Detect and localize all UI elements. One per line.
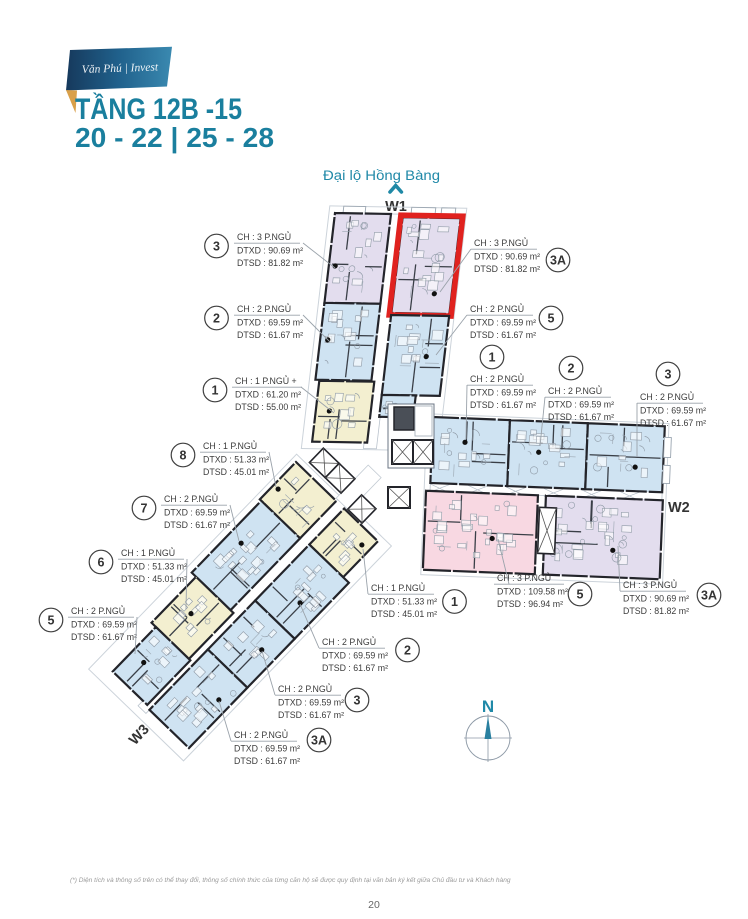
svg-text:DTXD : 51.33 m²: DTXD : 51.33 m² xyxy=(371,597,437,607)
svg-text:CH : 3 P.NGỦ: CH : 3 P.NGỦ xyxy=(474,237,528,248)
svg-text:DTXD : 90.69 m²: DTXD : 90.69 m² xyxy=(474,252,540,262)
svg-text:CH : 2 P.NGỦ: CH : 2 P.NGỦ xyxy=(470,373,524,384)
svg-text:3: 3 xyxy=(213,239,220,253)
svg-text:DTSD : 81.82 m²: DTSD : 81.82 m² xyxy=(237,258,303,268)
svg-text:DTSD : 61.67 m²: DTSD : 61.67 m² xyxy=(470,400,536,410)
svg-text:DTXD : 69.59 m²: DTXD : 69.59 m² xyxy=(71,620,137,630)
svg-text:TẦNG 12B -15: TẦNG 12B -15 xyxy=(75,92,242,126)
svg-text:(*) Diện tích và thông số trên: (*) Diện tích và thông số trên có thể th… xyxy=(70,875,511,884)
svg-text:3A: 3A xyxy=(701,588,717,602)
svg-text:DTSD : 61.67 m²: DTSD : 61.67 m² xyxy=(640,418,706,428)
svg-text:CH : 2 P.NGỦ: CH : 2 P.NGỦ xyxy=(278,683,332,694)
svg-text:DTXD : 69.59 m²: DTXD : 69.59 m² xyxy=(640,406,706,416)
svg-text:CH : 2 P.NGỦ: CH : 2 P.NGỦ xyxy=(164,493,218,504)
svg-text:1: 1 xyxy=(451,595,458,609)
svg-text:CH : 2 P.NGỦ: CH : 2 P.NGỦ xyxy=(71,605,125,616)
svg-text:5: 5 xyxy=(548,311,555,325)
svg-text:DTXD : 51.33 m²: DTXD : 51.33 m² xyxy=(121,562,187,572)
svg-text:2: 2 xyxy=(404,643,411,657)
svg-text:DTSD : 45.01 m²: DTSD : 45.01 m² xyxy=(371,609,437,619)
svg-text:CH : 2 P.NGỦ: CH : 2 P.NGỦ xyxy=(470,303,524,314)
svg-text:DTXD : 109.58 m²: DTXD : 109.58 m² xyxy=(497,587,568,597)
svg-text:20: 20 xyxy=(368,899,380,911)
svg-text:1: 1 xyxy=(212,383,219,397)
svg-text:DTXD : 69.59 m²: DTXD : 69.59 m² xyxy=(234,744,300,754)
svg-text:5: 5 xyxy=(48,613,55,627)
svg-text:DTSD : 61.67 m²: DTSD : 61.67 m² xyxy=(164,520,230,530)
svg-text:DTXD : 90.69 m²: DTXD : 90.69 m² xyxy=(237,246,303,256)
svg-text:CH : 1 P.NGỦ +: CH : 1 P.NGỦ + xyxy=(235,375,297,386)
svg-text:DTXD : 90.69 m²: DTXD : 90.69 m² xyxy=(623,594,689,604)
svg-text:DTXD : 69.59 m²: DTXD : 69.59 m² xyxy=(237,318,303,328)
svg-text:7: 7 xyxy=(141,501,148,515)
svg-text:1: 1 xyxy=(489,350,496,364)
svg-text:CH : 2 P.NGỦ: CH : 2 P.NGỦ xyxy=(237,303,291,314)
svg-text:DTXD : 51.33 m²: DTXD : 51.33 m² xyxy=(203,455,269,465)
svg-text:DTXD : 69.59 m²: DTXD : 69.59 m² xyxy=(278,698,344,708)
svg-text:DTXD : 69.59 m²: DTXD : 69.59 m² xyxy=(322,651,388,661)
svg-text:DTSD : 61.67 m²: DTSD : 61.67 m² xyxy=(470,330,536,340)
svg-text:DTXD : 69.59 m²: DTXD : 69.59 m² xyxy=(470,388,536,398)
svg-text:5: 5 xyxy=(577,587,584,601)
svg-text:Đại lộ Hồng Bàng: Đại lộ Hồng Bàng xyxy=(323,168,440,183)
svg-text:DTSD : 96.94 m²: DTSD : 96.94 m² xyxy=(497,599,563,609)
svg-text:DTSD : 61.67 m²: DTSD : 61.67 m² xyxy=(234,756,300,766)
svg-text:3A: 3A xyxy=(311,733,327,747)
svg-text:CH : 1 P.NGỦ: CH : 1 P.NGỦ xyxy=(203,440,257,451)
svg-text:DTXD : 69.59 m²: DTXD : 69.59 m² xyxy=(470,318,536,328)
svg-text:8: 8 xyxy=(180,448,187,462)
svg-text:2: 2 xyxy=(568,361,575,375)
svg-text:DTXD : 69.59 m²: DTXD : 69.59 m² xyxy=(164,508,230,518)
svg-text:CH : 2 P.NGỦ: CH : 2 P.NGỦ xyxy=(234,729,288,740)
svg-text:DTSD : 61.67 m²: DTSD : 61.67 m² xyxy=(548,412,614,422)
svg-text:CH : 2 P.NGỦ: CH : 2 P.NGỦ xyxy=(322,636,376,647)
svg-text:CH : 1 P.NGỦ: CH : 1 P.NGỦ xyxy=(121,547,175,558)
svg-text:DTSD : 61.67 m²: DTSD : 61.67 m² xyxy=(71,632,137,642)
svg-text:N: N xyxy=(482,697,494,716)
svg-text:CH : 3 P.NGỦ: CH : 3 P.NGỦ xyxy=(497,572,551,583)
svg-text:W2: W2 xyxy=(668,500,690,516)
svg-text:DTSD : 61.67 m²: DTSD : 61.67 m² xyxy=(322,663,388,673)
svg-text:20 - 22 | 25 - 28: 20 - 22 | 25 - 28 xyxy=(75,122,274,153)
svg-text:2: 2 xyxy=(213,311,220,325)
svg-text:DTSD : 61.67 m²: DTSD : 61.67 m² xyxy=(237,330,303,340)
svg-text:DTSD : 55.00 m²: DTSD : 55.00 m² xyxy=(235,402,301,412)
svg-text:DTSD : 61.67 m²: DTSD : 61.67 m² xyxy=(278,710,344,720)
svg-text:DTSD : 81.82 m²: DTSD : 81.82 m² xyxy=(623,606,689,616)
svg-text:CH : 1 P.NGỦ: CH : 1 P.NGỦ xyxy=(371,582,425,593)
svg-text:CH : 2 P.NGỦ: CH : 2 P.NGỦ xyxy=(640,391,694,402)
svg-text:CH : 2 P.NGỦ: CH : 2 P.NGỦ xyxy=(548,385,602,396)
svg-text:3: 3 xyxy=(665,367,672,381)
svg-text:DTXD : 61.20 m²: DTXD : 61.20 m² xyxy=(235,390,301,400)
svg-text:3A: 3A xyxy=(550,253,566,267)
svg-text:DTSD : 81.82 m²: DTSD : 81.82 m² xyxy=(474,264,540,274)
svg-text:DTSD : 45.01 m²: DTSD : 45.01 m² xyxy=(203,467,269,477)
svg-text:CH : 3 P.NGỦ: CH : 3 P.NGỦ xyxy=(623,579,677,590)
svg-text:CH : 3 P.NGỦ: CH : 3 P.NGỦ xyxy=(237,231,291,242)
svg-text:DTXD : 69.59 m²: DTXD : 69.59 m² xyxy=(548,400,614,410)
svg-text:6: 6 xyxy=(98,555,105,569)
svg-text:3: 3 xyxy=(354,693,361,707)
svg-text:DTSD : 45.01 m²: DTSD : 45.01 m² xyxy=(121,574,187,584)
